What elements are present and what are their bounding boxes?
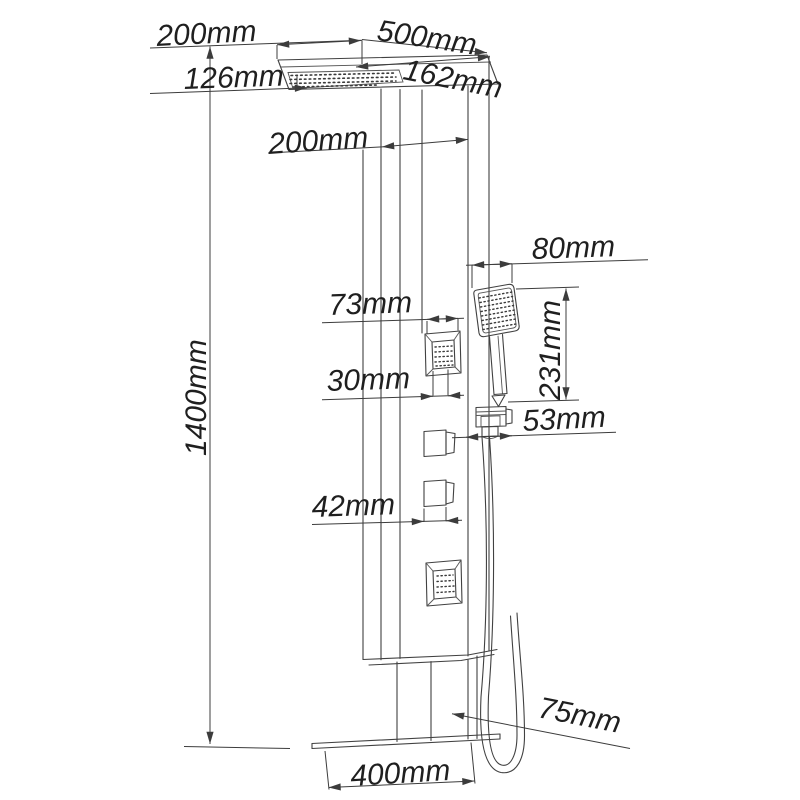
dim-label-head-offset: 126mm <box>183 60 284 96</box>
dim-label-knob-width: 42mm <box>311 488 395 524</box>
dimension-labels: 200mm 500mm 126mm 162mm 200mm 80mm 73mm … <box>155 14 624 793</box>
dim-label-hand-shower-width: 80mm <box>531 230 615 266</box>
dim-label-head-depth: 200mm <box>155 15 258 53</box>
dim-label-total-height: 1400mm <box>180 339 213 456</box>
dim-label-holder-offset: 53mm <box>522 401 607 438</box>
shower-hose <box>481 437 525 773</box>
diagram-canvas: 200mm 500mm 126mm 162mm 200mm 80mm 73mm … <box>0 0 800 800</box>
control-knob-lower <box>424 480 454 507</box>
dim-label-jet-width: 73mm <box>328 286 412 322</box>
body-jet-upper <box>425 331 461 376</box>
dim-label-base-width: 400mm <box>349 754 451 793</box>
dim-label-jet-inner: 30mm <box>326 362 410 398</box>
dim-label-panel-width: 200mm <box>266 121 369 161</box>
hand-shower-holder <box>476 407 512 439</box>
hand-shower <box>474 284 519 438</box>
body-jet-upper-dots <box>435 346 453 366</box>
control-knob-upper <box>424 430 455 457</box>
dim-label-head-width: 500mm <box>375 14 479 61</box>
panel-column <box>363 56 497 665</box>
spout-column <box>397 656 477 742</box>
body-jet-lower-dots <box>437 575 454 593</box>
dim-label-hand-shower-height: 231mm <box>534 300 567 401</box>
hand-shower-handle <box>490 335 508 407</box>
hand-shower-dots <box>479 292 516 330</box>
rain-head-nozzle-dots <box>290 73 396 87</box>
body-jet-lower <box>426 560 462 606</box>
shower-panel-diagram: 200mm 500mm 126mm 162mm 200mm 80mm 73mm … <box>0 0 800 800</box>
